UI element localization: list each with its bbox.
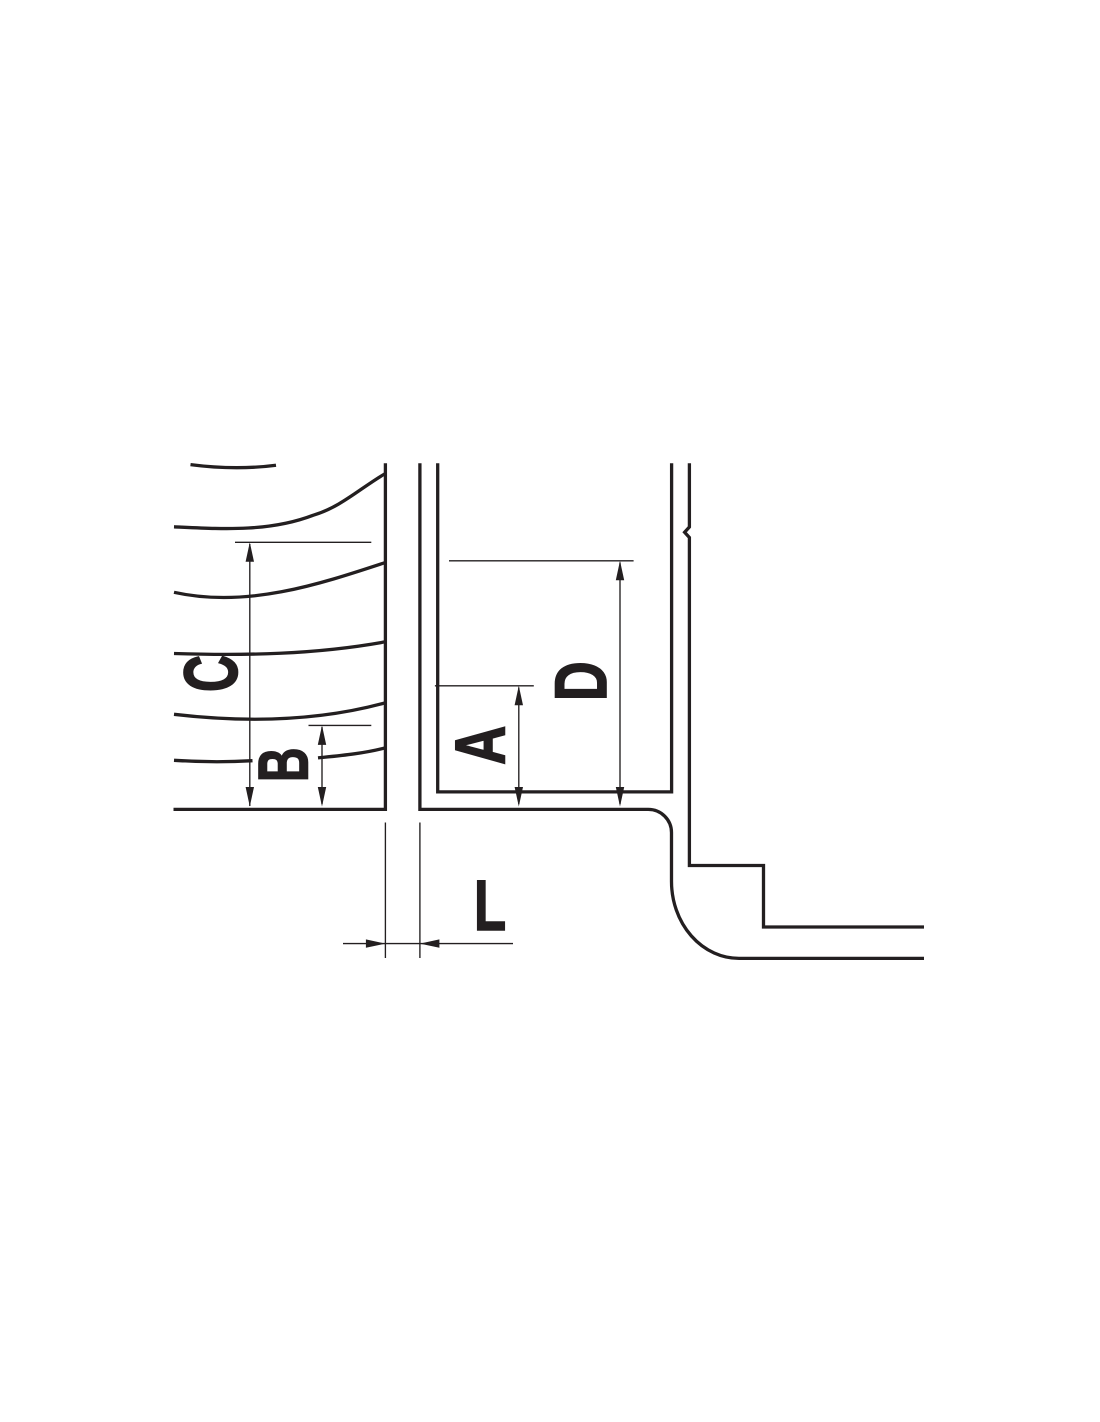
svg-text:B: B (243, 747, 323, 782)
svg-text:C: C (169, 655, 253, 692)
svg-text:L: L (474, 866, 506, 946)
svg-text:D: D (539, 661, 622, 701)
svg-text:A: A (442, 726, 520, 765)
